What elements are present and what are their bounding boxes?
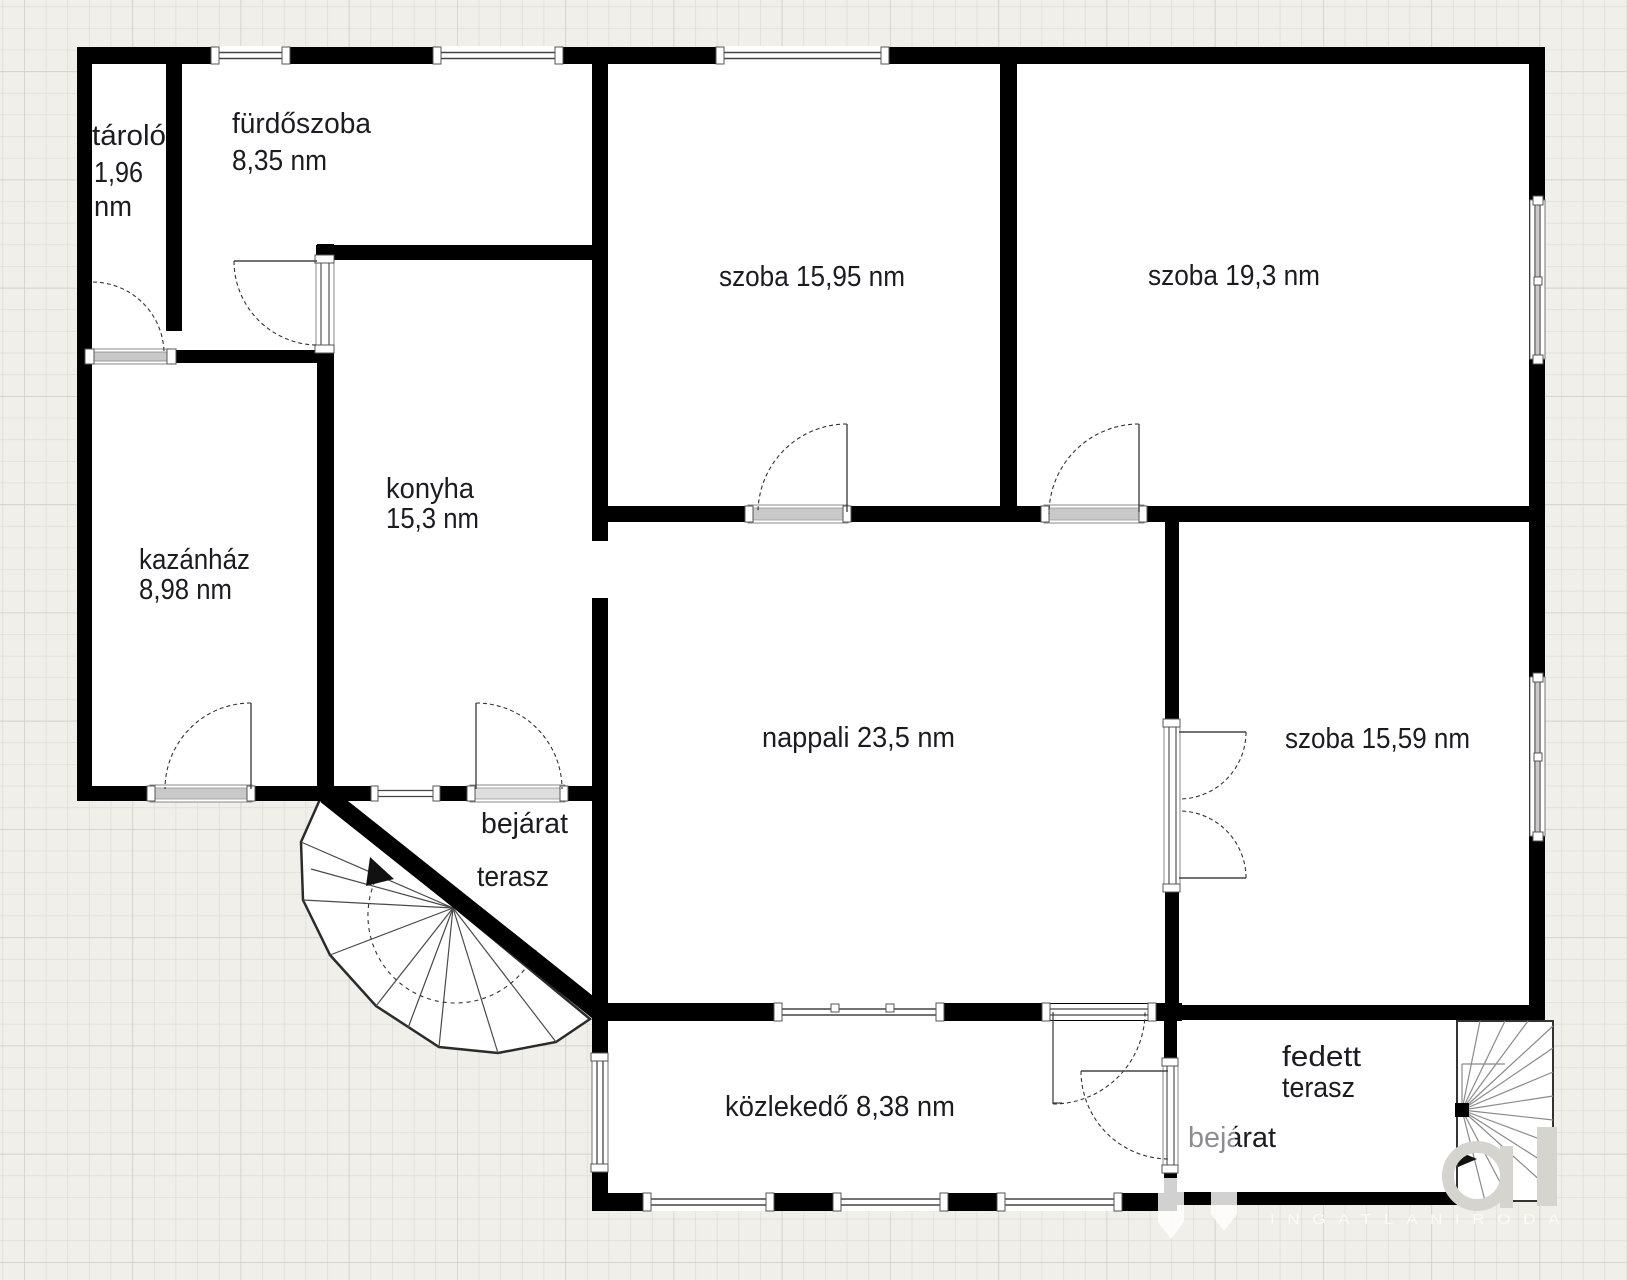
svg-text:8,98 nm: 8,98 nm [139,574,232,606]
svg-text:szoba 15,59 nm: szoba 15,59 nm [1285,723,1470,755]
svg-text:terasz: terasz [477,861,549,893]
svg-text:terasz: terasz [1282,1072,1355,1104]
svg-text:szoba 19,3 nm: szoba 19,3 nm [1148,260,1320,292]
svg-text:INGATLANIRODA: INGATLANIRODA [1270,1211,1572,1228]
svg-text:fürdőszoba: fürdőszoba [232,108,372,140]
svg-text:szoba 15,95 nm: szoba 15,95 nm [719,261,905,293]
svg-text:kazánház: kazánház [139,544,250,576]
svg-text:közlekedő 8,38 nm: közlekedő 8,38 nm [725,1091,955,1123]
svg-text:1,96: 1,96 [94,157,143,189]
svg-text:nm: nm [94,191,132,223]
svg-text:tároló: tároló [92,120,166,152]
svg-text:bejárat: bejárat [481,808,568,840]
svg-text:konyha: konyha [386,473,475,505]
svg-text:nappali 23,5 nm: nappali 23,5 nm [762,722,955,754]
svg-text:15,3 nm: 15,3 nm [386,503,479,535]
svg-text:8,35 nm: 8,35 nm [232,145,327,177]
svg-text:fedett: fedett [1282,1041,1361,1073]
